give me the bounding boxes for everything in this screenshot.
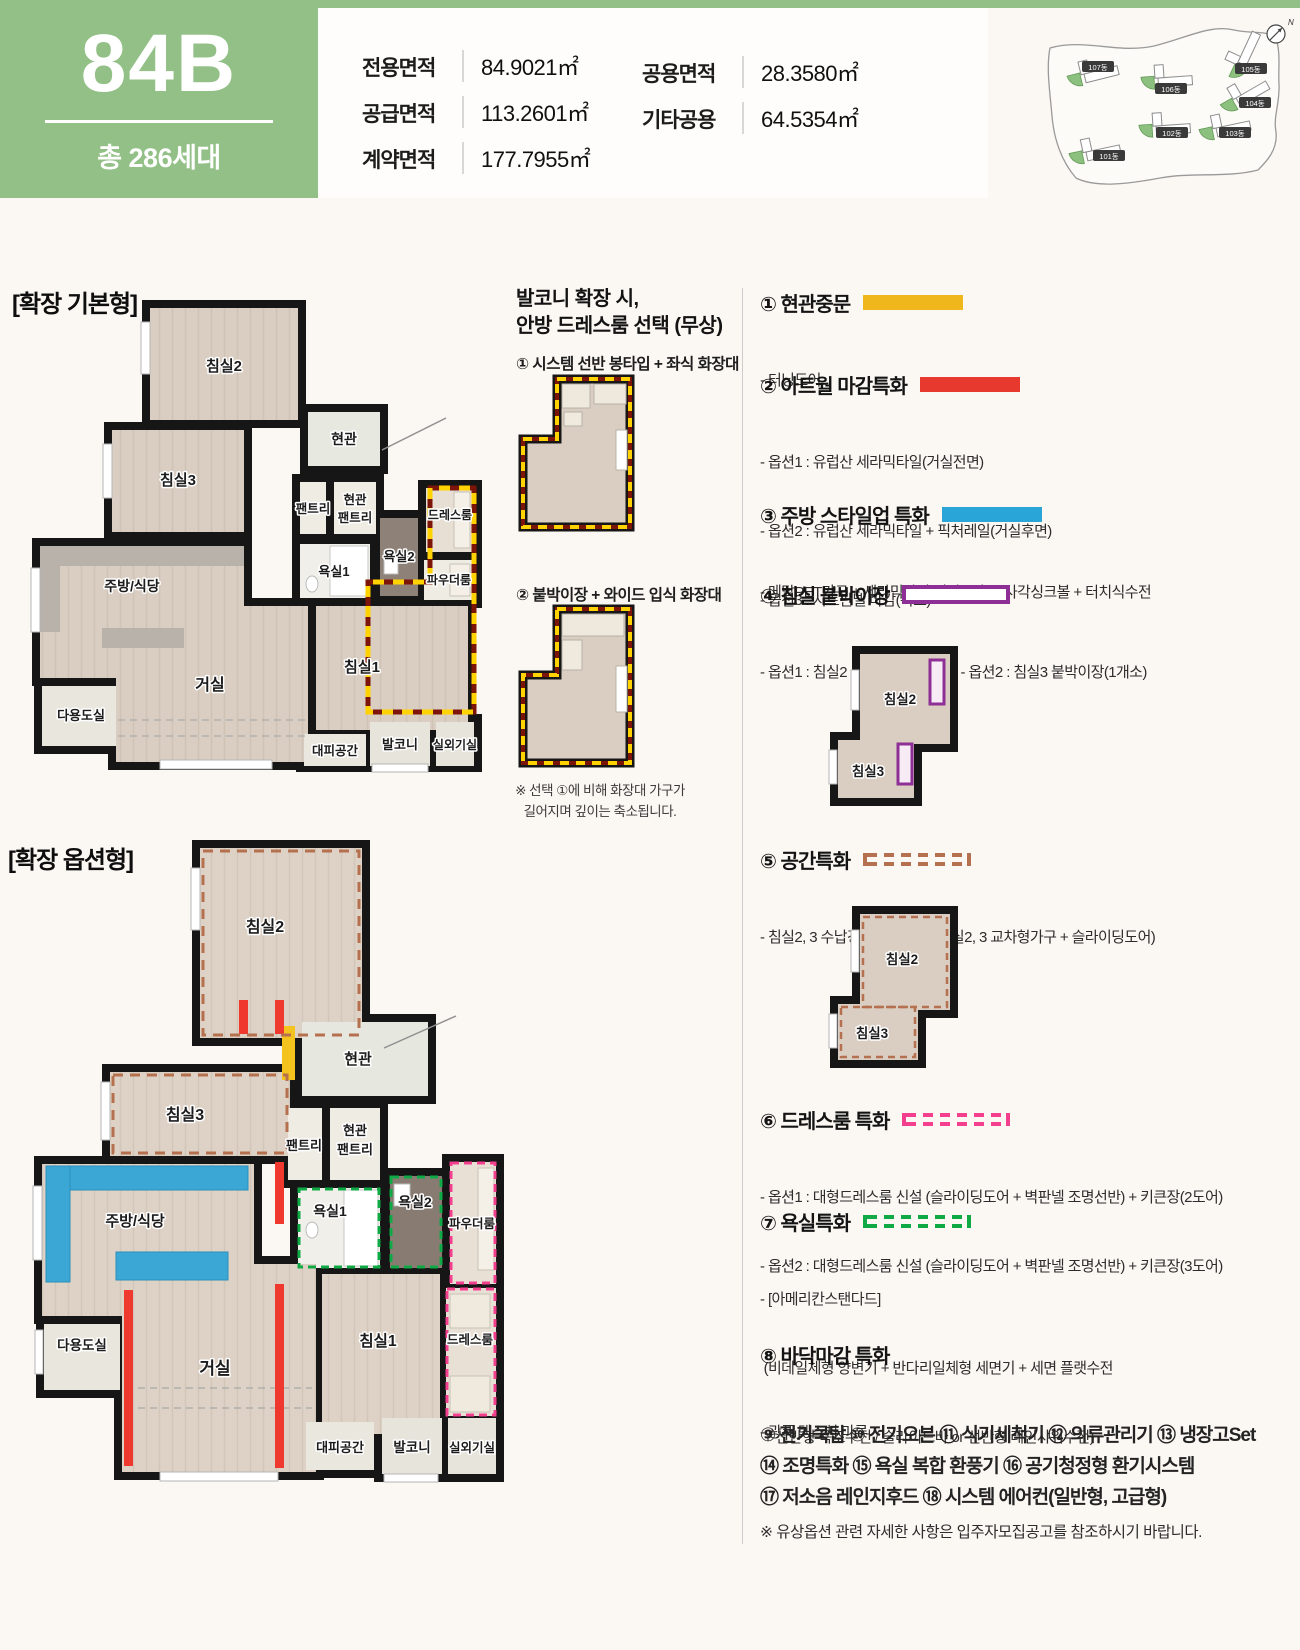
appliance-row: ⑨ 전기쿡탑 ⑩ 전기오븐 ⑪ 식기세척기 ⑫ 의류관리기 ⑬ 냉장고Set [760, 1420, 1255, 1451]
room-label: 팬트리 [296, 501, 331, 516]
balcony-option-2-diagram [516, 602, 638, 770]
area-label: 계약면적 [362, 144, 456, 174]
balcony-option-1-label: ① 시스템 선반 봉타입 + 좌식 화장대 [516, 352, 739, 374]
legend-title: ② 아트월 마감특화 [760, 370, 907, 399]
room-bed1 [322, 1274, 440, 1434]
balcony-option-1-diagram [516, 372, 638, 534]
room-label: 침실2 [246, 917, 284, 936]
room-label: 현관 [343, 1123, 367, 1138]
legend-title: ⑧ 바닥마감 특화 [760, 1340, 889, 1369]
paid-option-footnote: ※ 유상옵션 관련 자세한 사항은 입주자모집공고를 참조하시기 바랍니다. [760, 1520, 1202, 1542]
room-label: 욕실2 [398, 1194, 432, 1210]
room-label: 욕실1 [318, 564, 349, 579]
legend-title: ④ 침실 붙박이장 [760, 580, 889, 609]
brown-dash-swatch [863, 853, 971, 866]
green-dash-swatch [863, 1215, 971, 1228]
room-label: 파우더룸 [449, 1216, 496, 1231]
legend-title: ⑥ 드레스룸 특화 [760, 1105, 889, 1134]
banner-divider [45, 120, 273, 123]
wardrobe-bed2 [930, 660, 944, 704]
legend-title: ⑤ 공간특화 [760, 845, 850, 874]
legend-title: ③ 주방 스타일업 특화 [760, 500, 929, 529]
room-label: 욕실2 [383, 549, 414, 564]
legend-line: - 옵션1 : 대형드레스룸 신설 (슬라이딩도어 + 벽판넬 조명선반) + … [760, 1186, 1300, 1209]
balcony-option-note: ※ 선택 ①에 비해 화장대 가구가 길어지며 깊이는 축소됩니다. [470, 780, 730, 822]
room-label: 팬트리 [286, 1138, 322, 1153]
room-label: 팬트리 [338, 510, 373, 525]
room-utility [44, 1324, 120, 1390]
room-label: 침실3 [166, 1105, 204, 1124]
room-label: 발코니 [382, 737, 418, 752]
room-label: 침실2 [206, 358, 242, 375]
pink-dash-swatch [902, 1113, 1010, 1126]
room-label: 현관 [344, 1051, 372, 1068]
total-units: 총 286세대 [97, 136, 221, 175]
room-label: 실외기실 [433, 737, 477, 752]
room-hall-pantry [334, 482, 376, 534]
area-row: 계약면적 177.7955㎡ [362, 142, 590, 174]
room-label: 침실3 [160, 472, 196, 489]
appliance-row: ⑰ 저소음 레인지후드 ⑱ 시스템 에어컨(일반형, 고급형) [760, 1482, 1255, 1513]
room-label: 실외기실 [449, 1440, 495, 1455]
legend-line: - [아메리칸스탠다드] [760, 1288, 1300, 1311]
blue-swatch [942, 507, 1042, 522]
purple-outline-swatch [902, 585, 1010, 604]
yellow-swatch [863, 295, 963, 310]
floorplan-basic: 침실2 현관 침실3 팬트리 현관 팬트리 욕실1 욕실2 드레스룸 파우더룸 … [10, 292, 482, 774]
room-label: 드레스룸 [428, 507, 472, 522]
legend-line: - 옵션1 : 유럽산 세라믹타일(거실전면) [760, 451, 1300, 474]
room-label: 침실1 [359, 1331, 397, 1350]
room-label: 주방/식당 [104, 578, 160, 594]
room-label: 침실1 [344, 659, 380, 676]
wardrobe-bed3 [898, 744, 912, 784]
column-divider [742, 288, 743, 1544]
room-label: 침실2 [886, 952, 918, 967]
area-label: 공급면적 [362, 98, 456, 128]
room-label: 침실2 [884, 692, 916, 707]
area-row: 공급면적 113.2601㎡ [362, 96, 590, 128]
room-label: 팬트리 [337, 1142, 373, 1157]
unit-type-banner: 84B 총 286세대 [0, 0, 318, 198]
area-value: 113.2601㎡ [462, 96, 589, 128]
appliance-options: ⑨ 전기쿡탑 ⑩ 전기오븐 ⑪ 식기세척기 ⑫ 의류관리기 ⑬ 냉장고Set ⑭… [760, 1420, 1255, 1513]
area-label: 공용면적 [642, 58, 736, 88]
area-value: 177.7955㎡ [462, 142, 590, 174]
room-label: 주방/식당 [105, 1212, 165, 1230]
room-label: 침실3 [856, 1026, 889, 1041]
room-label: 발코니 [393, 1439, 430, 1455]
red-swatch [920, 377, 1020, 392]
legend-title: ⑦ 욕실특화 [760, 1207, 850, 1236]
area-row: 전용면적 84.9021㎡ [362, 50, 590, 82]
balcony-option-title: 발코니 확장 시, 안방 드레스룸 선택 (무상) [516, 286, 746, 340]
area-label: 기타공용 [642, 104, 736, 134]
wardrobe-thumbnail: 침실2 침실3 [822, 640, 970, 810]
room-label: 욕실1 [313, 1203, 347, 1219]
room-label: 침실3 [852, 764, 885, 779]
options-legend-column: ① 현관중문 - 터닝도어 ② 아트월 마감특화 - 옵션1 : 유럽산 세라믹… [730, 0, 1300, 1650]
room-label: 대피공간 [316, 1440, 364, 1455]
unit-type-code: 84B [81, 23, 237, 105]
floorplan-option: 침실2 현관 침실3 팬트리 현관 팬트리 욕실1 욕실2 파우더룸 주방/식당… [10, 832, 506, 1484]
appliance-row: ⑭ 조명특화 ⑮ 욕실 복합 환풍기 ⑯ 공기청정형 환기시스템 [760, 1451, 1255, 1482]
room-label: 파우더룸 [427, 572, 471, 587]
room-label: 거실 [199, 1359, 230, 1378]
space-special-thumbnail: 침실2 침실3 [822, 902, 970, 1070]
room-label: 현관 [343, 492, 367, 507]
room-label: 거실 [195, 676, 224, 694]
legend-title: ① 현관중문 [760, 288, 850, 317]
room-label: 현관 [331, 431, 357, 447]
room-label: 대피공간 [312, 743, 359, 758]
room-label: 다용도실 [57, 1338, 107, 1353]
area-column-1: 전용면적 84.9021㎡ 공급면적 113.2601㎡ 계약면적 177.79… [362, 50, 590, 174]
area-label: 전용면적 [362, 52, 456, 82]
room-label: 드레스룸 [447, 1332, 494, 1347]
room-label: 다용도실 [57, 708, 105, 723]
area-value: 84.9021㎡ [462, 50, 579, 82]
